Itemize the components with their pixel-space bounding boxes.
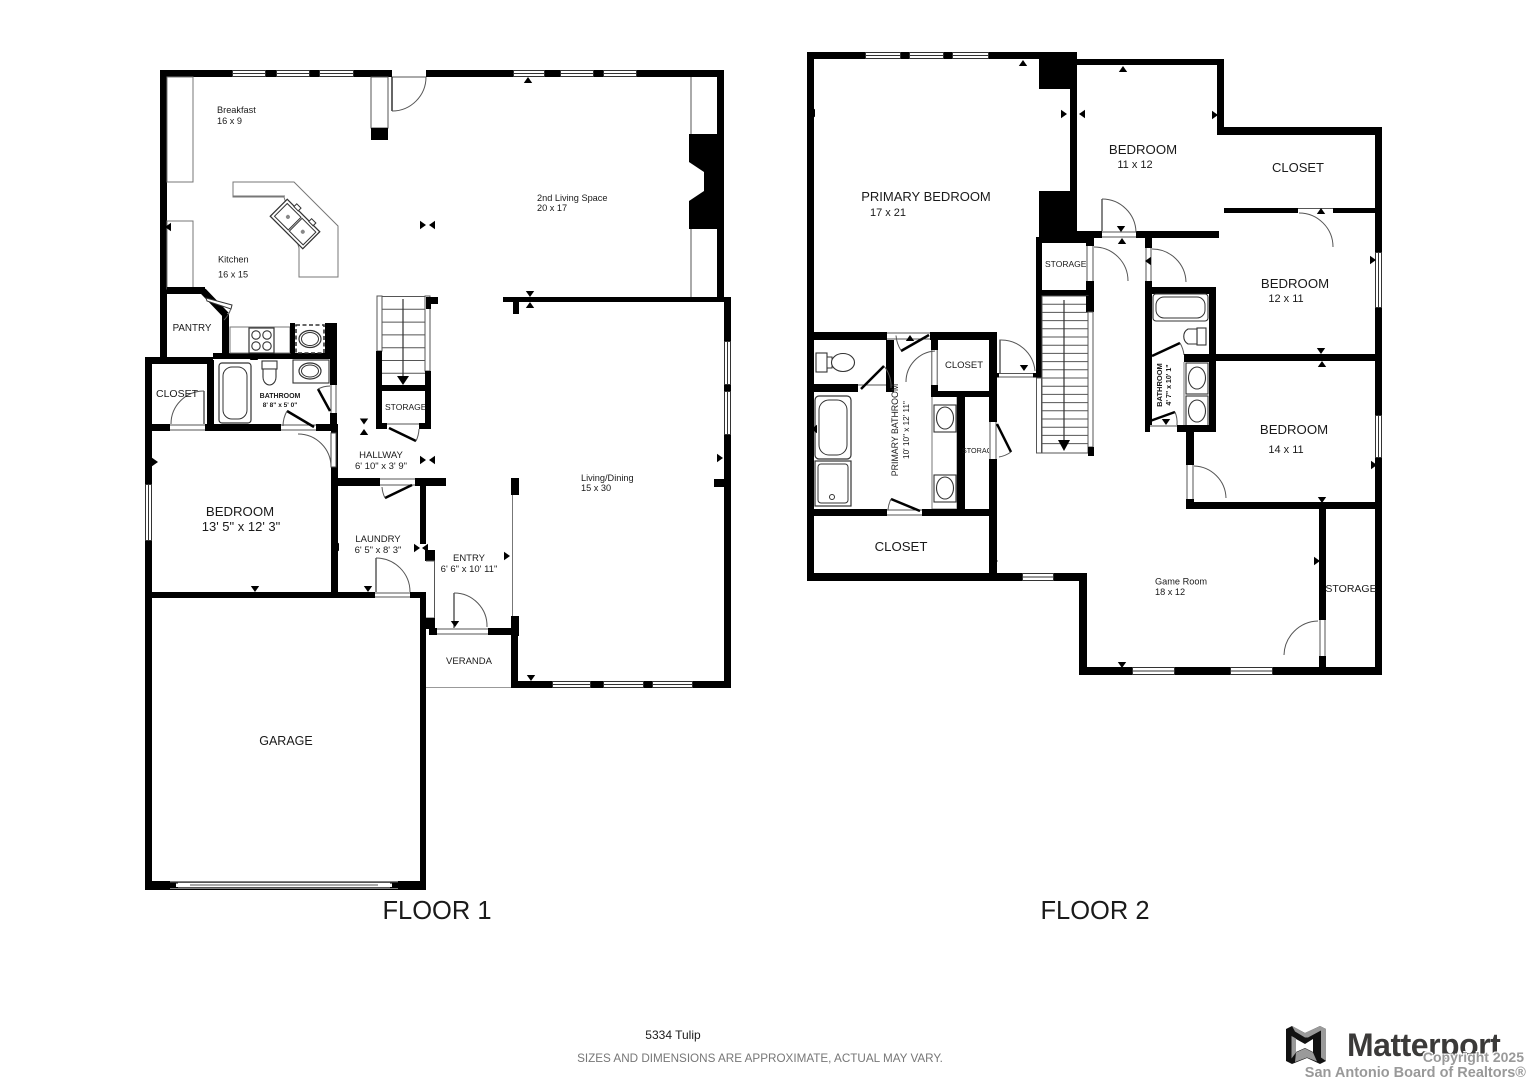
svg-text:Living/Dining: Living/Dining [581, 473, 634, 483]
svg-text:SIZES AND DIMENSIONS ARE APPRO: SIZES AND DIMENSIONS ARE APPROXIMATE, AC… [577, 1052, 943, 1065]
svg-text:8' 8" x 5' 0": 8' 8" x 5' 0" [263, 402, 298, 409]
svg-text:FLOOR 1: FLOOR 1 [382, 897, 491, 925]
svg-text:PRIMARY BATHROOM: PRIMARY BATHROOM [890, 384, 900, 476]
svg-text:13' 5" x 12' 3": 13' 5" x 12' 3" [202, 519, 281, 534]
svg-text:6' 5" x 8' 3": 6' 5" x 8' 3" [355, 545, 402, 556]
svg-text:Breakfast: Breakfast [217, 105, 256, 115]
svg-text:17 x 21: 17 x 21 [870, 207, 906, 219]
svg-text:BEDROOM: BEDROOM [1261, 276, 1329, 291]
svg-text:VERANDA: VERANDA [446, 656, 493, 667]
svg-text:CLOSET: CLOSET [875, 539, 928, 554]
svg-text:12 x 11: 12 x 11 [1268, 293, 1303, 305]
svg-text:5334 Tulip: 5334 Tulip [645, 1028, 701, 1042]
svg-text:STORAGE: STORAGE [1045, 259, 1087, 269]
svg-text:STORAGE: STORAGE [1325, 583, 1376, 595]
svg-text:20 x 17: 20 x 17 [537, 203, 567, 213]
svg-text:18 x 12: 18 x 12 [1155, 587, 1185, 597]
svg-text:PANTRY: PANTRY [173, 323, 212, 334]
svg-text:LAUNDRY: LAUNDRY [355, 534, 401, 545]
svg-text:PRIMARY BEDROOM: PRIMARY BEDROOM [861, 189, 991, 204]
svg-text:16 x 9: 16 x 9 [217, 116, 242, 126]
svg-text:FLOOR 2: FLOOR 2 [1040, 897, 1149, 925]
svg-text:BATHROOM: BATHROOM [260, 393, 301, 400]
svg-text:11 x 12: 11 x 12 [1117, 159, 1152, 171]
svg-text:4' 7" x 10' 1": 4' 7" x 10' 1" [1166, 364, 1173, 405]
svg-text:Kitchen: Kitchen [218, 255, 249, 265]
svg-text:ENTRY: ENTRY [453, 553, 486, 564]
svg-text:BEDROOM: BEDROOM [1260, 422, 1328, 437]
svg-text:CLOSET: CLOSET [1272, 160, 1324, 175]
svg-text:6' 10" x 3' 9": 6' 10" x 3' 9" [355, 461, 407, 472]
svg-text:BATHROOM: BATHROOM [1155, 363, 1164, 407]
svg-text:Game Room: Game Room [1155, 577, 1207, 587]
svg-text:15 x 30: 15 x 30 [581, 483, 611, 493]
svg-text:BEDROOM: BEDROOM [1109, 142, 1177, 157]
svg-text:16 x 15: 16 x 15 [218, 270, 248, 280]
svg-text:BEDROOM: BEDROOM [206, 504, 274, 519]
svg-text:San Antonio Board of Realtors®: San Antonio Board of Realtors® [1305, 1065, 1527, 1080]
svg-text:Copyright 2025: Copyright 2025 [1423, 1049, 1524, 1065]
svg-text:6' 6" x 10' 11": 6' 6" x 10' 11" [441, 564, 498, 575]
svg-text:GARAGE: GARAGE [259, 734, 313, 748]
svg-text:CLOSET: CLOSET [945, 360, 983, 371]
svg-text:HALLWAY: HALLWAY [359, 450, 403, 461]
svg-text:2nd Living Space: 2nd Living Space [537, 193, 608, 203]
svg-text:14 x 11: 14 x 11 [1268, 444, 1303, 456]
svg-text:10' 10" x 12' 11": 10' 10" x 12' 11" [902, 401, 911, 459]
svg-text:CLOSET: CLOSET [156, 388, 199, 400]
svg-text:STORAGE: STORAGE [385, 402, 427, 412]
